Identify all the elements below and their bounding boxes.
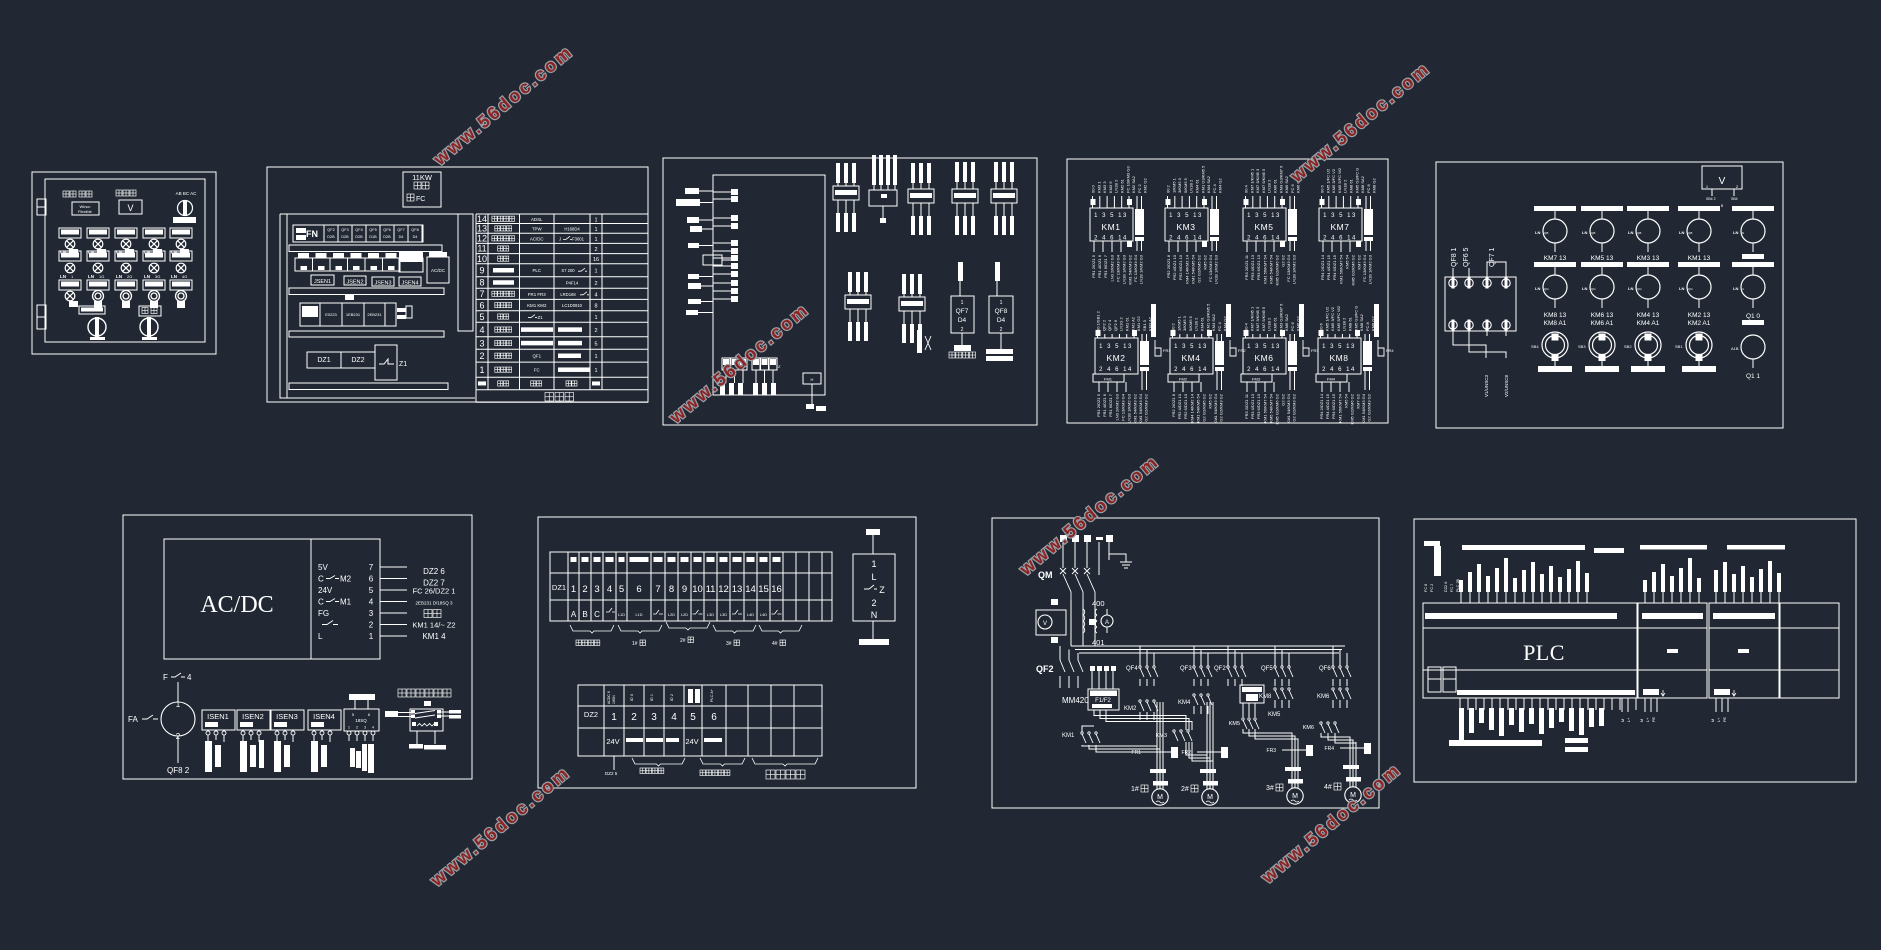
svg-text:KM5 1/FC U2: KM5 1/FC U2 — [1325, 168, 1330, 193]
svg-text:2EB231: 2EB231 — [367, 312, 382, 317]
svg-text:G2 G2/KM5 G2: G2 G2/KM5 G2 — [1197, 254, 1202, 282]
svg-text:1G: 1G — [99, 274, 104, 279]
svg-text:H168D4: H168D4 — [564, 226, 580, 231]
svg-text:1: 1 — [594, 227, 597, 233]
svg-text:FC 6: FC 6 — [1290, 322, 1295, 331]
svg-text:D1B: D1B — [369, 235, 377, 239]
svg-text:L4D: L4D — [760, 613, 767, 617]
svg-text:FR4 4/DZ1 15: FR4 4/DZ1 15 — [1325, 393, 1330, 419]
svg-text:FC 7: FC 7 — [1450, 584, 1454, 592]
svg-text:ID 0: ID 0 — [630, 694, 634, 701]
svg-text:C: C — [594, 610, 600, 619]
svg-text:LN: LN — [88, 274, 94, 279]
svg-text:V: V — [1719, 176, 1726, 187]
svg-text:KM1 56/KM7 54: KM1 56/KM7 54 — [1338, 254, 1343, 283]
svg-text:KM1 14/~ Z2: KM1 14/~ Z2 — [412, 621, 455, 630]
svg-text:FC 4: FC 4 — [1212, 184, 1217, 193]
svg-text:3: 3 — [594, 584, 599, 595]
svg-text:FC: FC — [534, 368, 540, 373]
svg-text:5: 5 — [690, 712, 696, 723]
svg-text:1: 1 — [594, 217, 597, 223]
svg-text:M: M — [1292, 793, 1298, 800]
svg-text:L1D: L1D — [636, 613, 643, 617]
svg-text:V: V — [127, 203, 133, 213]
svg-text:LN1B 2: LN1B 2 — [1267, 179, 1272, 193]
svg-text:FM2: FM2 — [1179, 377, 1188, 382]
svg-text:G2 G2: G2 G2 — [1281, 254, 1286, 267]
svg-text:LN0 2/KM2 G3: LN0 2/KM2 G3 — [1109, 254, 1114, 281]
svg-text:D4: D4 — [997, 317, 1006, 324]
svg-text:KM6 SA2: KM6 SA2 — [1284, 175, 1289, 193]
svg-text:QG: QG — [1688, 287, 1693, 291]
svg-text:8: 8 — [594, 304, 597, 310]
svg-text:1: 1 — [611, 712, 617, 723]
svg-text:LN1B 1/KM2 G3: LN1B 1/KM2 G3 — [1368, 254, 1373, 284]
svg-text:00 2: 00 2 — [1171, 322, 1176, 331]
svg-text:D4: D4 — [958, 317, 967, 324]
svg-text:LN: LN — [1733, 230, 1738, 235]
svg-text:KM5 3/FC V2: KM5 3/FC V2 — [1330, 306, 1335, 331]
svg-text:2 4 6 14: 2 4 6 14 — [1099, 367, 1133, 373]
svg-text:KM7: KM7 — [1331, 222, 1350, 232]
svg-text:QG: QG — [1544, 287, 1549, 291]
svg-text:QF3: QF3 — [1180, 666, 1192, 672]
svg-text:7: 7 — [479, 289, 484, 299]
svg-text:LN1B 2: LN1B 2 — [1114, 179, 1119, 193]
svg-text:QF1: QF1 — [532, 354, 541, 359]
svg-text:QF2 4: QF2 4 — [1107, 319, 1112, 331]
svg-text:D4: D4 — [413, 235, 418, 239]
svg-text:KM5 G3/FC G: KM5 G3/FC G — [1353, 306, 1358, 331]
svg-text:FC 10/KM3 G3: FC 10/KM3 G3 — [1125, 166, 1130, 193]
svg-text:M: M — [1207, 794, 1213, 801]
svg-text:KM4 14/KM2 14: KM4 14/KM2 14 — [1189, 393, 1194, 422]
svg-text:KM1 56/KM7 54: KM1 56/KM7 54 — [1262, 393, 1267, 422]
svg-text:5: 5 — [369, 586, 374, 595]
svg-text:2#: 2# — [680, 638, 686, 644]
svg-text:8: 8 — [669, 584, 674, 595]
svg-text:KM8 G2: KM8 G2 — [1371, 316, 1376, 331]
svg-text:3/KM5 3: 3/KM5 3 — [1182, 315, 1187, 331]
svg-text:KM8 61: KM8 61 — [1349, 178, 1354, 193]
svg-text:PE: PE — [1652, 716, 1656, 722]
svg-text:4: 4 — [479, 325, 484, 335]
svg-text:D2B: D2B — [383, 235, 391, 239]
svg-text:KM3 13: KM3 13 — [1637, 255, 1660, 262]
svg-text:QF2: QF2 — [327, 228, 334, 232]
svg-text:400: 400 — [1092, 599, 1105, 608]
svg-text:FR2 2/DZ1 8: FR2 2/DZ1 8 — [1166, 254, 1171, 278]
svg-text:L2D: L2D — [668, 613, 675, 617]
svg-text:KM2: KM2 — [1107, 353, 1126, 363]
svg-text:LN1B 1/KM2 G3: LN1B 1/KM2 G3 — [1127, 393, 1132, 423]
svg-text:KM8 SA2: KM8 SA2 — [1360, 175, 1365, 193]
svg-text:00 4: 00 4 — [1244, 322, 1249, 331]
svg-text:LN: LN — [1628, 230, 1633, 235]
svg-text:1 3 5 13: 1 3 5 13 — [1169, 213, 1203, 219]
svg-text:FC 2: FC 2 — [1137, 184, 1142, 193]
svg-text:TPW: TPW — [532, 226, 543, 231]
svg-text:PLC: PLC — [1523, 640, 1565, 665]
svg-text:FC 4: FC 4 — [1217, 322, 1222, 331]
svg-text:FR3 4/DZ1 13: FR3 4/DZ1 13 — [1250, 393, 1255, 419]
svg-text:KM5 54: KM5 54 — [1343, 393, 1348, 408]
svg-text:5: 5 — [594, 342, 597, 348]
svg-text:JSEN4: JSEN4 — [401, 281, 418, 287]
svg-text:QF8: QF8 — [995, 308, 1008, 315]
svg-text:L3D: L3D — [707, 613, 714, 617]
svg-text:FC 13/KM3 G4: FC 13/KM3 G4 — [1208, 254, 1213, 281]
svg-text:2: 2 — [594, 328, 597, 334]
svg-text:J: J — [559, 236, 561, 241]
svg-text:5V: 5V — [318, 563, 328, 572]
svg-text:QB: QB — [1637, 231, 1641, 235]
svg-text:KM1 54/KM3 G2: KM1 54/KM3 G2 — [1128, 254, 1133, 284]
svg-text:C: C — [318, 575, 324, 584]
svg-text:AC/DC: AC/DC — [530, 236, 544, 241]
svg-text:LN1G 2: LN1G 2 — [1119, 316, 1124, 331]
svg-text:6: 6 — [711, 712, 717, 723]
svg-text:KM3 5: KM3 5 — [1108, 181, 1113, 193]
svg-text:KM5: KM5 — [1229, 721, 1240, 727]
svg-text:QB: QB — [1688, 231, 1692, 235]
svg-text:2: 2 — [961, 327, 964, 333]
svg-text:G2 G2/KM3 G2: G2 G2/KM3 G2 — [1144, 393, 1149, 421]
svg-text:5/KM5 5: 5/KM5 5 — [1183, 177, 1188, 193]
svg-text:6: 6 — [479, 300, 484, 310]
svg-text:KM3 G3/KM7 6: KM3 G3/KM7 6 — [1278, 165, 1283, 193]
svg-text:QF2 6: QF2 6 — [1113, 319, 1118, 331]
svg-text:KM6 A1: KM6 A1 — [1591, 320, 1614, 327]
svg-text:KM5 G2/KM6 G2: KM5 G2/KM6 G2 — [1275, 254, 1280, 285]
svg-text:KM1 A2: KM1 A2 — [1130, 316, 1135, 331]
svg-text:C: C — [318, 598, 324, 607]
svg-text:5: 5 — [479, 312, 484, 322]
svg-text:00 6: 00 6 — [1319, 322, 1324, 331]
svg-text:KM6 61: KM6 61 — [1273, 316, 1278, 331]
svg-text:LN1B 2: LN1B 2 — [1189, 179, 1194, 193]
svg-text:D4: D4 — [399, 235, 404, 239]
svg-text:QF2: QF2 — [1036, 664, 1054, 674]
svg-text:7: 7 — [369, 563, 374, 572]
svg-text:QB: QB — [1591, 231, 1595, 235]
svg-text:2G: 2G — [127, 274, 132, 279]
svg-text:KM4 G2: KM4 G2 — [1223, 316, 1228, 331]
svg-text:2: 2 — [582, 584, 587, 595]
svg-text:4: 4 — [369, 598, 374, 607]
svg-text:1: 1 — [871, 559, 876, 569]
svg-text:A: A — [571, 610, 577, 619]
svg-text:PLC 2B: PLC 2B — [1456, 578, 1460, 592]
svg-text:F3001: F3001 — [572, 236, 585, 241]
svg-text:LN1B 2: LN1B 2 — [1342, 317, 1347, 331]
svg-text:KM5 G2: KM5 G2 — [1203, 254, 1208, 269]
svg-text:G2 G2/KM3 G2: G2 G2/KM3 G2 — [1367, 393, 1372, 421]
svg-text:1 3 5 13: 1 3 5 13 — [1099, 344, 1133, 350]
svg-text:M: M — [1157, 794, 1163, 801]
svg-text:KM6 G2: KM6 G2 — [1296, 316, 1301, 331]
svg-text:KM4 13: KM4 13 — [1637, 312, 1660, 319]
svg-text:LN: LN — [60, 274, 66, 279]
svg-text:KM1 56/KM7 54: KM1 56/KM7 54 — [1337, 393, 1342, 422]
svg-text:N: N — [871, 610, 878, 620]
svg-text:F: F — [163, 673, 168, 682]
svg-text:4: 4 — [372, 726, 374, 730]
svg-text:FC 13/KM3 G4: FC 13/KM3 G4 — [1133, 254, 1138, 281]
svg-text:2: 2 — [479, 351, 484, 361]
svg-text:LN: LN — [1733, 286, 1738, 291]
svg-text:E0223: E0223 — [325, 312, 337, 317]
svg-text:KM1 61: KM1 61 — [1125, 316, 1130, 331]
svg-text:QF5: QF5 — [1261, 666, 1273, 672]
svg-text:KM1 G2: KM1 G2 — [1136, 316, 1141, 331]
svg-text:KM5 3/FC V2: KM5 3/FC V2 — [1331, 168, 1336, 193]
svg-text:FR3: FR3 — [1267, 748, 1277, 754]
svg-text:KM8: KM8 — [1330, 353, 1349, 363]
svg-text:1: 1 — [594, 237, 597, 243]
svg-text:KM4 A1: KM4 A1 — [1637, 320, 1660, 327]
svg-text:A1B: A1B — [1731, 346, 1739, 351]
svg-text:KM5 13: KM5 13 — [1591, 255, 1614, 262]
svg-text:FM3: FM3 — [1252, 377, 1261, 382]
svg-text:Q1 0: Q1 0 — [1746, 313, 1760, 320]
svg-text:KM5 1/FC U2: KM5 1/FC U2 — [1324, 306, 1329, 331]
svg-text:MM420: MM420 — [1062, 696, 1089, 705]
svg-text:FN: FN — [306, 229, 318, 239]
svg-text:KM7 3/KM5 3: KM7 3/KM5 3 — [1255, 168, 1260, 193]
svg-text:KM5 54/KM7 54: KM5 54/KM7 54 — [1268, 254, 1273, 283]
svg-text:3: 3 — [479, 338, 484, 348]
svg-text:KM5 5/FC W2: KM5 5/FC W2 — [1337, 167, 1342, 193]
svg-text:H: H — [811, 377, 814, 382]
svg-text:FA: FA — [128, 715, 138, 724]
svg-text:9: 9 — [682, 584, 687, 595]
svg-text:KM5: KM5 — [1268, 712, 1281, 718]
svg-text:KM6 13: KM6 13 — [1591, 312, 1614, 319]
svg-text:11: 11 — [706, 584, 716, 595]
svg-text:KM2: KM2 — [1124, 706, 1137, 712]
svg-text:ACDC 6: ACDC 6 — [607, 691, 611, 704]
svg-text:18SQ: 18SQ — [355, 718, 367, 723]
svg-text:KM7 1/KM5 1: KM7 1/KM5 1 — [1249, 306, 1254, 331]
svg-text:2 4 6 14: 2 4 6 14 — [1323, 236, 1357, 242]
svg-text:SB3: SB3 — [1578, 344, 1586, 349]
svg-text:FC 6: FC 6 — [1290, 184, 1295, 193]
svg-text:QF7: QF7 — [397, 228, 404, 232]
svg-text:SB2: SB2 — [1624, 344, 1632, 349]
svg-text:3/KM5 3: 3/KM5 3 — [1177, 177, 1182, 193]
svg-text:FC 8: FC 8 — [1365, 322, 1370, 331]
svg-text:6: 6 — [636, 584, 641, 595]
svg-text:KM4: KM4 — [1182, 353, 1201, 363]
svg-text:14: 14 — [477, 214, 487, 224]
svg-text:FR4: FR4 — [1325, 746, 1335, 752]
svg-text:KM8 G2: KM8 G2 — [1372, 178, 1377, 193]
svg-text:1: 1 — [961, 300, 964, 306]
svg-text:2: 2 — [631, 712, 637, 723]
svg-text:KM1 56/KM7 54: KM1 56/KM7 54 — [1262, 254, 1267, 283]
svg-text:FR2: FR2 — [1182, 750, 1192, 756]
svg-text:P4F14: P4F14 — [566, 280, 579, 285]
svg-text:M: M — [1640, 719, 1644, 722]
svg-text:13: 13 — [477, 224, 487, 234]
svg-text:AB BC AC: AB BC AC — [176, 191, 198, 196]
svg-text:KM1 54/KM3 G4: KM1 54/KM3 G4 — [1361, 393, 1366, 423]
svg-text:M1: M1 — [340, 598, 352, 607]
svg-text:L2D: L2D — [681, 613, 688, 617]
svg-text:FR1 2/DZ1 5: FR1 2/DZ1 5 — [1096, 393, 1101, 417]
svg-text:KM1 KM2: KM1 KM2 — [527, 303, 547, 308]
svg-text:QF4: QF4 — [1126, 666, 1138, 672]
svg-text:1: 1 — [571, 584, 576, 595]
svg-text:3: 3 — [364, 726, 366, 730]
svg-text:G2 G2/KM5 G2: G2 G2/KM5 G2 — [1202, 393, 1207, 421]
svg-text:1/KM5 1: 1/KM5 1 — [1171, 177, 1176, 193]
svg-text:9: 9 — [479, 265, 484, 275]
svg-text:KM1 54/KM5 54: KM1 54/KM5 54 — [1195, 393, 1200, 422]
svg-text:KM8 SA2: KM8 SA2 — [1359, 313, 1364, 331]
svg-text:LN1B 1/KM2 G3: LN1B 1/KM2 G3 — [1139, 254, 1144, 284]
svg-text:LN1B 2: LN1B 2 — [1267, 317, 1272, 331]
svg-text:1: 1 — [176, 700, 181, 709]
svg-text:M: M — [1711, 719, 1715, 722]
svg-text:QF6: QF6 — [383, 228, 390, 232]
svg-text:KM3 1: KM3 1 — [1096, 181, 1101, 193]
svg-text:5/KM5 5: 5/KM5 5 — [1188, 315, 1193, 331]
svg-text:1/KM5 1: 1/KM5 1 — [1176, 315, 1181, 331]
svg-text:16: 16 — [593, 257, 599, 263]
svg-text:FR4 6/DZ1 15: FR4 6/DZ1 15 — [1331, 393, 1336, 419]
svg-text:LC1D0910: LC1D0910 — [562, 303, 583, 308]
svg-text:QF2: QF2 — [1214, 666, 1226, 672]
svg-text:FR2 4/DZ1 10: FR2 4/DZ1 10 — [1177, 393, 1182, 419]
svg-text:18SN: 18SN — [612, 695, 616, 704]
svg-text:S7 200: S7 200 — [561, 268, 575, 273]
svg-text:KM7 1/KM5 1: KM7 1/KM5 1 — [1249, 168, 1254, 193]
svg-text:SB1: SB1 — [1675, 344, 1683, 349]
svg-text:DZ2: DZ2 — [351, 357, 364, 364]
svg-text:DZ1: DZ1 — [317, 357, 330, 364]
svg-text:FR1 4/DZ1 6: FR1 4/DZ1 6 — [1097, 254, 1102, 278]
svg-text:7: 7 — [655, 584, 660, 595]
svg-text:15: 15 — [758, 584, 769, 595]
svg-text:FC 26/DZ2 1: FC 26/DZ2 1 — [413, 587, 456, 596]
svg-text:DZ1: DZ1 — [552, 583, 566, 592]
svg-text:KM1 4: KM1 4 — [422, 632, 446, 641]
svg-text:F1/F2: F1/F2 — [1095, 698, 1111, 704]
svg-text:JSEN3: JSEN3 — [374, 281, 391, 287]
svg-text:LN: LN — [1582, 230, 1587, 235]
svg-text:KM4 G2: KM4 G2 — [1218, 178, 1223, 193]
svg-text:1 3 5 13: 1 3 5 13 — [1322, 344, 1356, 350]
svg-text:KM2 13: KM2 13 — [1688, 312, 1711, 319]
svg-text:1: 1 — [594, 368, 597, 374]
svg-text:2: 2 — [594, 281, 597, 287]
svg-text:2: 2 — [369, 621, 374, 630]
svg-text:QF7 1: QF7 1 — [1489, 247, 1496, 267]
svg-text:FR1 4/DZ1 6: FR1 4/DZ1 6 — [1102, 393, 1107, 417]
svg-text:KM5 5/FC W2: KM5 5/FC W2 — [1336, 305, 1341, 331]
svg-text:QG: QG — [1591, 287, 1596, 291]
svg-text:00 1/SB1 2: 00 1/SB1 2 — [1096, 310, 1101, 331]
svg-text:QF6 5: QF6 5 — [1463, 247, 1470, 267]
svg-text:10: 10 — [477, 254, 487, 264]
svg-text:QF8: QF8 — [411, 228, 418, 232]
svg-text:24V: 24V — [606, 737, 619, 746]
svg-text:KM6 61: KM6 61 — [1273, 178, 1278, 193]
svg-text:LN1B 1/KM2 G3: LN1B 1/KM2 G3 — [1122, 254, 1127, 284]
svg-text:QF5: QF5 — [369, 228, 376, 232]
svg-text:Z1: Z1 — [537, 315, 543, 320]
svg-text:QF6: QF6 — [1319, 666, 1331, 672]
svg-text:QF4: QF4 — [355, 228, 362, 232]
svg-text:KM3 A2: KM3 A2 — [1148, 316, 1153, 331]
svg-text:V: V — [1043, 621, 1047, 627]
svg-text:1#: 1# — [632, 641, 638, 647]
svg-text:FC 8: FC 8 — [1424, 584, 1428, 592]
svg-text:L: L — [318, 632, 323, 641]
svg-text:ID 1: ID 1 — [650, 694, 654, 701]
svg-text:KM5: KM5 — [1255, 222, 1274, 232]
svg-text:ADSL: ADSL — [531, 217, 543, 222]
svg-text:FR1 6/DZ1 7: FR1 6/DZ1 7 — [1108, 393, 1113, 417]
svg-text:KM7 13: KM7 13 — [1544, 255, 1567, 262]
svg-text:KM1: KM1 — [1102, 222, 1121, 232]
svg-text:KM7 G2: KM7 G2 — [1357, 254, 1362, 269]
svg-text:LN1B 1/KM2 G3: LN1B 1/KM2 G3 — [1214, 254, 1219, 284]
svg-text:ISEN3: ISEN3 — [276, 712, 298, 721]
svg-text:LN: LN — [1582, 286, 1587, 291]
svg-text:FR2 2/DZ1 8: FR2 2/DZ1 8 — [1171, 393, 1176, 417]
svg-text:L4D: L4D — [747, 613, 754, 617]
svg-text:PLC: PLC — [532, 268, 541, 273]
svg-text:ISEN2: ISEN2 — [242, 712, 264, 721]
svg-text:ISEN4: ISEN4 — [313, 712, 335, 721]
svg-text:4G: 4G — [182, 274, 187, 279]
svg-text:KM4 SA2: KM4 SA2 — [1206, 175, 1211, 193]
svg-text:D2B: D2B — [327, 235, 335, 239]
svg-text:KM1 54/KM5 54: KM1 54/KM5 54 — [1190, 254, 1195, 283]
svg-text:FR3 2/DZ1 11: FR3 2/DZ1 11 — [1244, 254, 1249, 280]
svg-text:FC 2: FC 2 — [1430, 584, 1434, 592]
svg-text:KM3: KM3 — [1177, 222, 1196, 232]
svg-text:PE: PE — [1723, 716, 1727, 722]
svg-text:24V: 24V — [318, 586, 333, 595]
svg-text:1 3 5 13: 1 3 5 13 — [1174, 344, 1208, 350]
svg-text:KM1 13: KM1 13 — [1688, 255, 1711, 262]
svg-text:PLC A+: PLC A+ — [710, 688, 714, 702]
svg-text:1: 1 — [594, 354, 597, 360]
svg-text:00 6: 00 6 — [1320, 184, 1325, 193]
svg-text:KM5 G2/KM6 G2: KM5 G2/KM6 G2 — [1351, 254, 1356, 285]
svg-text:LRD168: LRD168 — [560, 292, 576, 297]
svg-text:2: 2 — [356, 726, 358, 730]
svg-text:2 4 6 14: 2 4 6 14 — [1322, 367, 1356, 373]
svg-text:A: A — [1105, 620, 1109, 626]
svg-text:Z: Z — [879, 585, 885, 595]
svg-text:2 4 6 14: 2 4 6 14 — [1094, 236, 1128, 242]
svg-text:ISEN1: ISEN1 — [207, 712, 229, 721]
svg-text:FR2: FR2 — [1238, 348, 1246, 353]
svg-text:KM2 G2: KM2 G2 — [1143, 178, 1148, 193]
svg-text:KM6: KM6 — [1303, 725, 1314, 731]
svg-text:6: 6 — [369, 575, 374, 584]
svg-text:KM2 A1: KM2 A1 — [1688, 320, 1711, 327]
svg-text:FC 13/KM3 G4: FC 13/KM3 G4 — [1115, 254, 1120, 281]
svg-text:3: 3 — [651, 712, 657, 723]
svg-text:L3D: L3D — [720, 613, 727, 617]
svg-text:Flexible: Flexible — [78, 209, 93, 214]
